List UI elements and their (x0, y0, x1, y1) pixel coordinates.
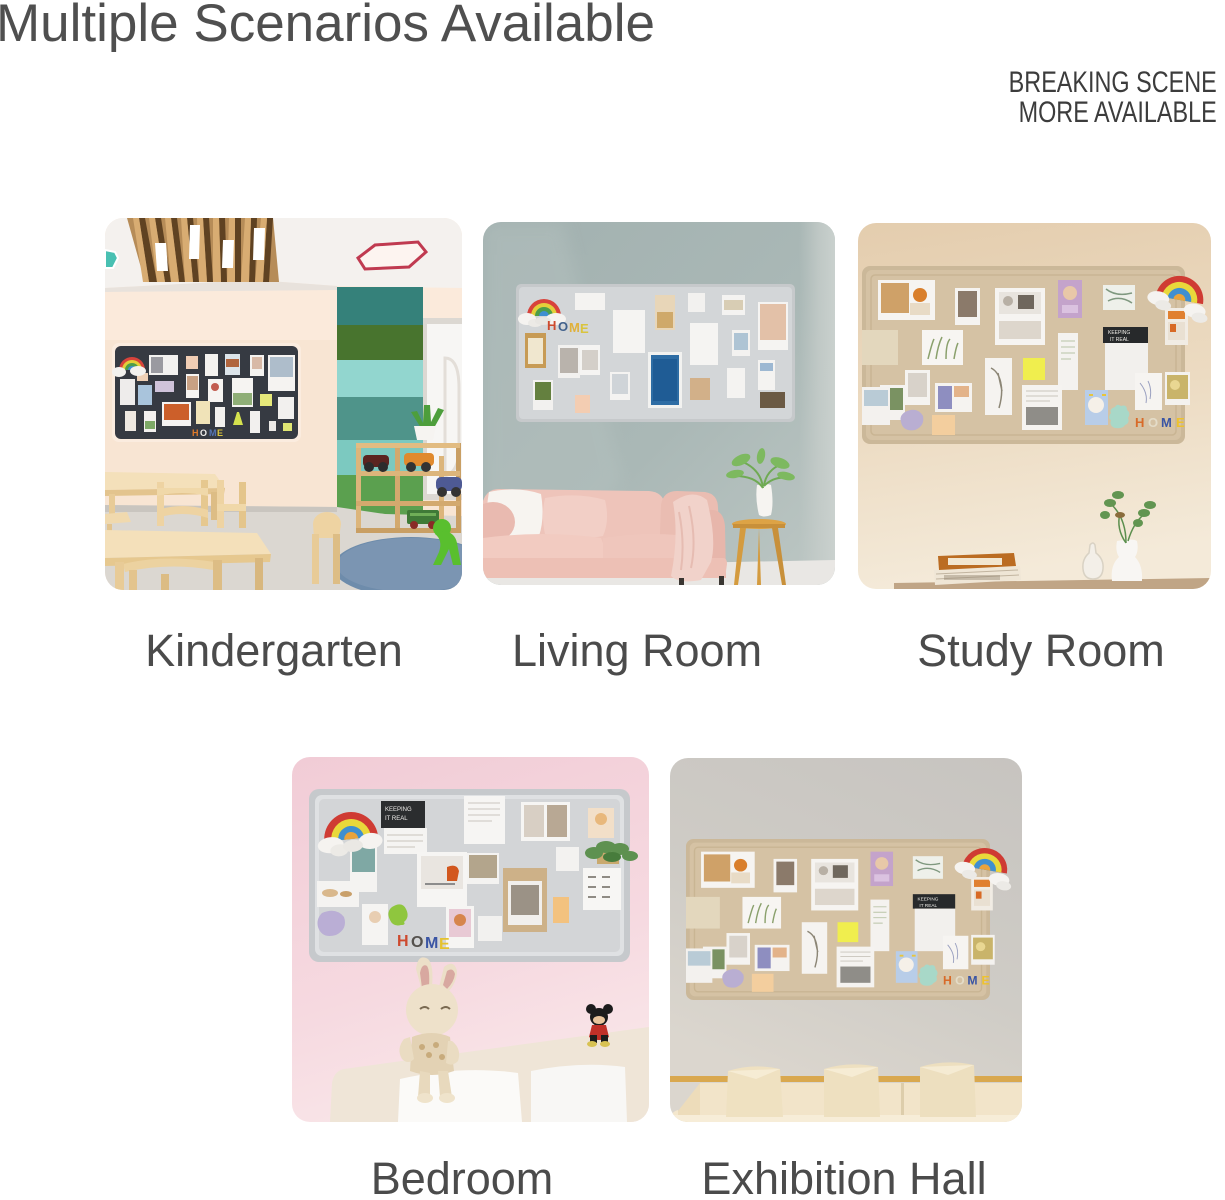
svg-text:KEEPING: KEEPING (385, 807, 412, 813)
svg-text:E: E (217, 428, 223, 438)
svg-text:KEEPING: KEEPING (1108, 330, 1130, 336)
svg-text:E: E (1176, 415, 1185, 430)
svg-text:M: M (425, 935, 438, 952)
svg-text:M: M (1161, 415, 1172, 430)
svg-text:O: O (411, 934, 423, 951)
svg-text:E: E (580, 321, 589, 336)
svg-text:H: H (397, 933, 409, 950)
svg-text:E: E (439, 936, 450, 953)
svg-text:M: M (209, 428, 217, 438)
svg-text:O: O (200, 428, 207, 438)
svg-text:H: H (1135, 415, 1144, 430)
svg-text:IT REAL: IT REAL (385, 816, 408, 822)
svg-text:H: H (547, 318, 556, 333)
svg-text:O: O (1148, 415, 1158, 430)
svg-text:M: M (569, 320, 580, 335)
svg-text:H: H (192, 428, 199, 438)
svg-text:IT REAL: IT REAL (1110, 337, 1129, 343)
svg-text:O: O (558, 319, 568, 334)
